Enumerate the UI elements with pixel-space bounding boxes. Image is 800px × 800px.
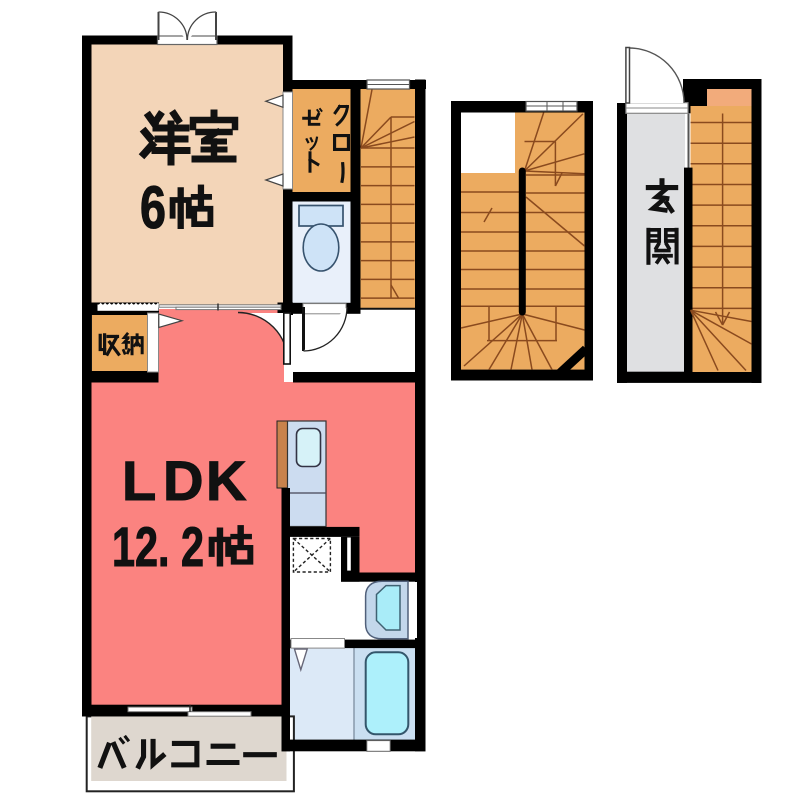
svg-text:K: K bbox=[206, 449, 246, 512]
svg-text:12. 2: 12. 2 bbox=[112, 515, 204, 578]
svg-text:6: 6 bbox=[140, 174, 166, 241]
svg-text:D: D bbox=[163, 449, 203, 512]
svg-text:L: L bbox=[122, 449, 156, 512]
